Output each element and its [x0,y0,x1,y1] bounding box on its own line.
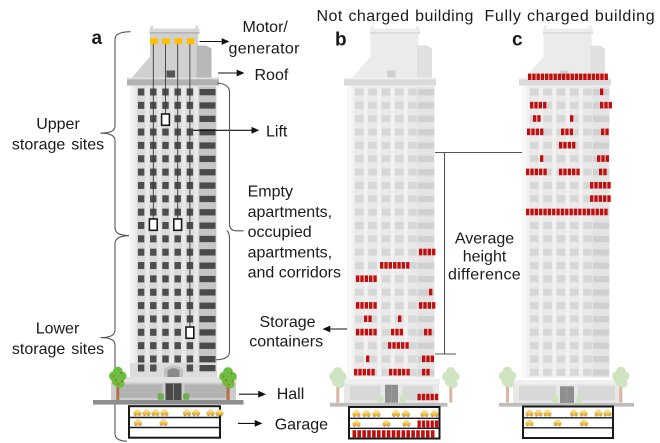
svg-text:Motor/: Motor/ [243,19,289,36]
svg-text:Roof: Roof [255,67,289,84]
svg-text:Fully charged building: Fully charged building [485,8,656,25]
svg-text:Storage: Storage [259,314,315,331]
svg-text:occupied: occupied [248,224,312,241]
svg-text:generator: generator [229,41,301,58]
svg-text:Lift: Lift [266,124,288,141]
svg-text:Garage: Garage [275,417,328,434]
svg-text:storage sites: storage sites [12,341,104,358]
svg-text:a: a [92,28,103,49]
svg-text:c: c [512,30,523,51]
svg-text:Not charged building: Not charged building [317,8,474,25]
svg-text:b: b [335,30,347,51]
svg-text:containers: containers [249,333,323,350]
svg-text:Lower: Lower [36,321,80,338]
svg-text:apartments,: apartments, [248,244,332,261]
svg-text:apartments,: apartments, [248,204,332,221]
svg-text:storage sites: storage sites [12,136,104,153]
svg-text:Average: Average [455,231,514,248]
svg-text:Hall: Hall [277,386,305,403]
svg-text:and corridors: and corridors [248,265,341,282]
svg-text:height: height [463,248,507,265]
svg-text:difference: difference [448,266,521,283]
svg-text:Upper: Upper [36,116,80,133]
svg-text:Empty: Empty [248,184,293,201]
